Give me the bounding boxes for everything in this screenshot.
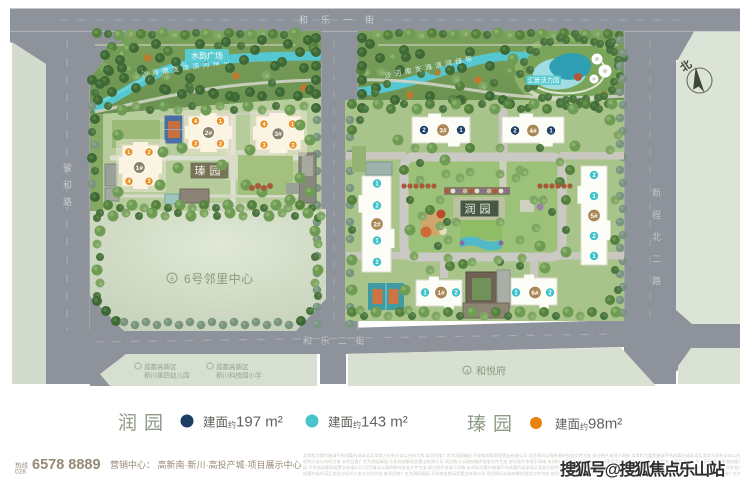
svg-text:3: 3 [147,179,150,185]
svg-text:2#: 2# [373,221,381,228]
svg-text:润园: 润园 [465,202,495,216]
svg-text:1#: 1# [136,165,144,172]
svg-text:1#: 1# [437,290,445,297]
svg-text:搜狐号@搜狐焦点乐山站: 搜狐号@搜狐焦点乐山站 [560,459,726,479]
svg-text:骏和路: 骏和路 [62,162,72,214]
svg-text:汇景活力园: 汇景活力园 [528,76,559,85]
svg-text:2#: 2# [205,130,213,137]
svg-text:建面约197 m²: 建面约197 m² [203,414,283,431]
svg-text:2: 2 [147,150,150,156]
svg-text:3#: 3# [274,131,282,138]
svg-text:6: 6 [170,276,174,283]
svg-text:建面约143 m²: 建面约143 m² [328,414,408,431]
svg-text:3: 3 [262,143,265,149]
svg-text:新川第四幼儿园: 新川第四幼儿园 [144,371,190,380]
svg-text:和乐二街: 和乐二街 [303,335,373,346]
svg-text:1: 1 [127,150,130,156]
svg-text:2: 2 [291,143,294,149]
svg-text:润园: 润园 [118,412,170,434]
svg-text:成都高新区: 成都高新区 [144,362,177,371]
svg-text:1: 1 [219,119,222,125]
svg-text:2: 2 [219,141,222,147]
svg-text:瑧园: 瑧园 [467,413,519,435]
svg-text:4#: 4# [529,128,537,135]
svg-text:营销中心： 高新南·新川·高投产城·项目展示中心: 营销中心： 高新南·新川·高投产城·项目展示中心 [110,459,302,470]
svg-text:1: 1 [291,122,294,128]
svg-text:6#: 6# [531,290,539,297]
svg-text:5#: 5# [590,213,598,220]
svg-text:3#: 3# [439,127,447,134]
svg-text:6号邻里中心: 6号邻里中心 [184,271,254,286]
svg-text:3: 3 [194,141,197,147]
svg-text:水韵广场: 水韵广场 [191,51,223,61]
svg-text:6578 8889: 6578 8889 [32,457,101,473]
svg-text:本资料为要约邀请不构成要约或承诺买卖双方权利义务以合同为准: 本资料为要约邀请不构成要约或承诺买卖双方权利义务以合同为准 本项目推广名为润园瑧… [303,452,740,459]
svg-text:新川科技园小学: 新川科技园小学 [216,371,262,380]
svg-text:和悦府: 和悦府 [476,365,506,378]
svg-text:4: 4 [465,369,468,375]
svg-text:成都高新区: 成都高新区 [216,362,249,371]
svg-text:和乐一街: 和乐一街 [299,14,387,25]
svg-text:建面约98m²: 建面约98m² [555,416,622,433]
svg-text:新程北二路: 新程北二路 [651,187,661,298]
